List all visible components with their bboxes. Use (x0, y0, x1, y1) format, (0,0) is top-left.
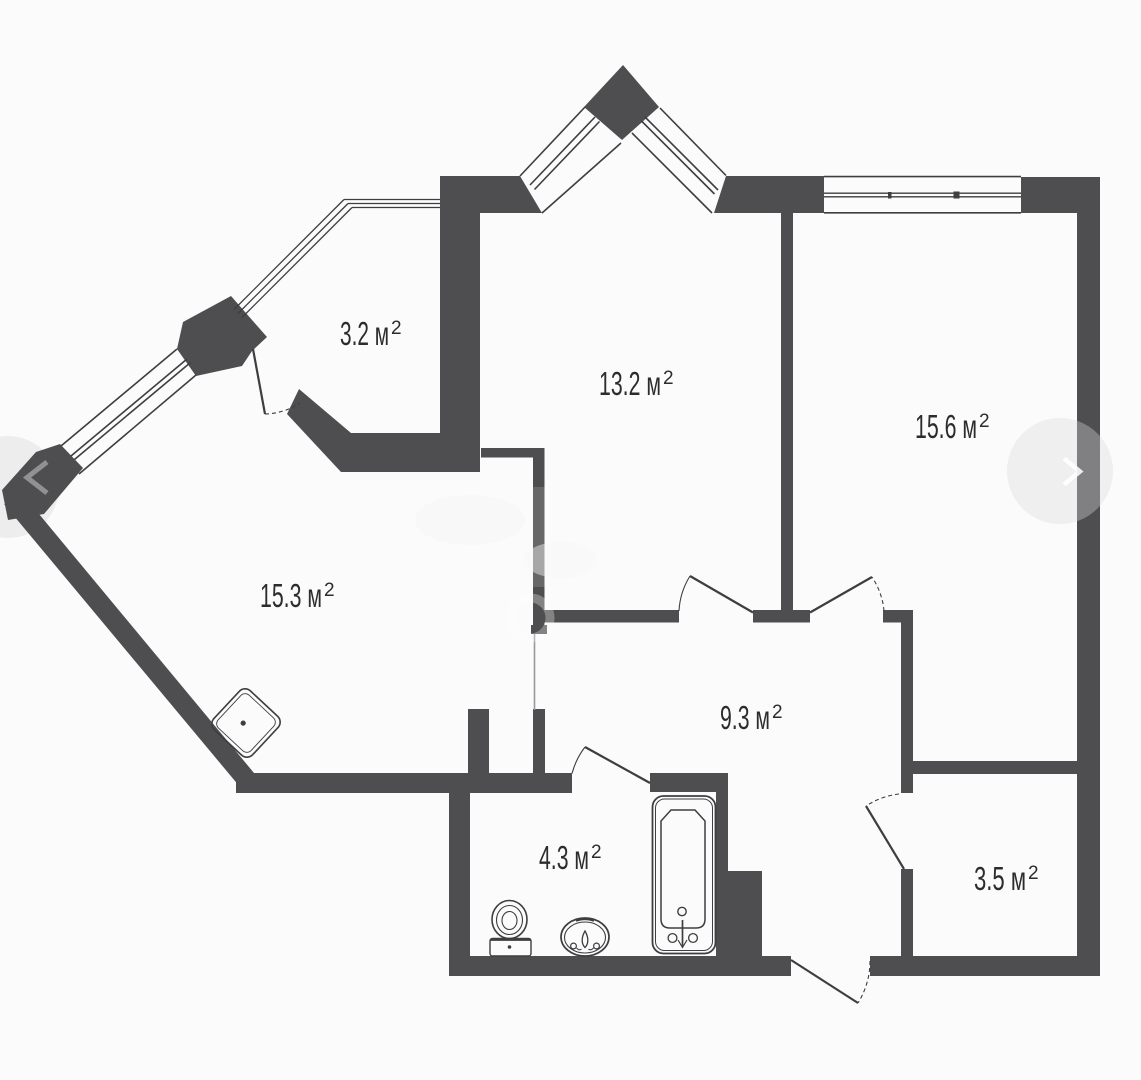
svg-text:9.3 м: 9.3 м (720, 699, 770, 736)
svg-text:2: 2 (663, 368, 674, 389)
svg-text:2: 2 (591, 842, 602, 863)
svg-text:15.6 м: 15.6 м (915, 408, 977, 445)
svg-text:13.2 м: 13.2 м (599, 365, 661, 402)
svg-text:2: 2 (772, 702, 783, 723)
svg-text:2: 2 (324, 580, 335, 601)
svg-text:2: 2 (391, 318, 402, 339)
svg-text:15.3 м: 15.3 м (260, 577, 322, 614)
svg-text:3.2 м: 3.2 м (340, 315, 389, 352)
svg-text:2: 2 (1028, 863, 1039, 884)
svg-text:3.5 м: 3.5 м (974, 860, 1026, 897)
svg-text:4.3 м: 4.3 м (539, 839, 589, 876)
svg-text:2: 2 (979, 411, 990, 432)
